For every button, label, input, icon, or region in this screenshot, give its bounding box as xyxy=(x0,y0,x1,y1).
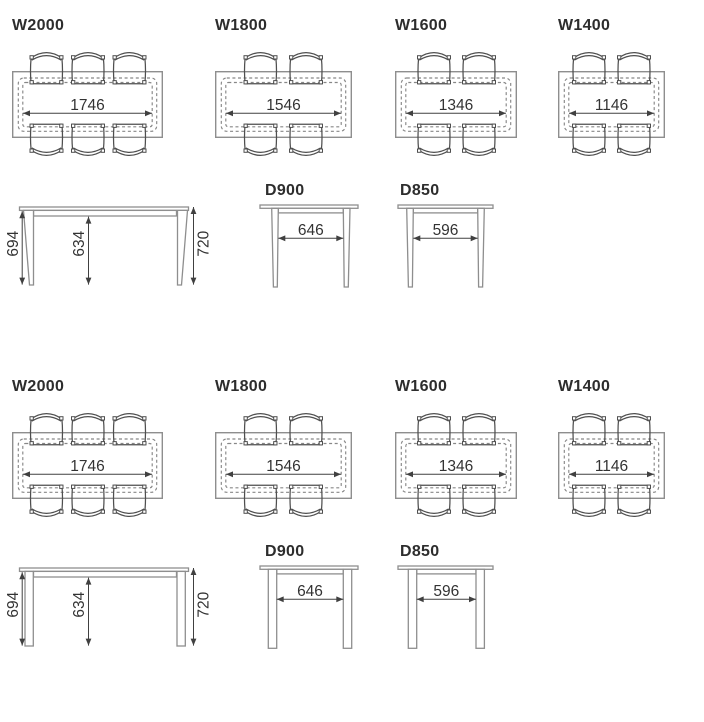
dimension-value: 1546 xyxy=(266,97,300,114)
depth-label: D850 xyxy=(400,183,439,199)
dimension-value: 694 xyxy=(5,230,22,256)
dimension-value: 634 xyxy=(71,591,88,617)
size-label: W1400 xyxy=(558,379,610,395)
table-leg xyxy=(268,569,276,648)
dimension-value: 1346 xyxy=(439,458,473,475)
table-end-drawing xyxy=(260,566,358,648)
top-view-w1400: 1146 xyxy=(558,409,665,521)
end-elevation-d900: 646 xyxy=(255,198,361,294)
table-leg xyxy=(24,210,34,285)
dimension-value: 1546 xyxy=(266,458,300,475)
size-label: W1600 xyxy=(395,379,447,395)
size-label: W1400 xyxy=(558,18,610,34)
table-leg xyxy=(177,571,185,646)
depth-label: D900 xyxy=(265,544,304,560)
top-view-w1800: 1546 xyxy=(215,409,352,521)
furniture-spec-sheet: { "sections": [ { "leg_style": "tapered"… xyxy=(0,0,704,698)
size-label: W2000 xyxy=(12,18,64,34)
top-view-w1600: 1346 xyxy=(395,48,517,160)
table-leg xyxy=(25,571,33,646)
dimension-value: 1746 xyxy=(70,458,104,475)
table-leg xyxy=(343,569,351,648)
top-view-w1600: 1346 xyxy=(395,409,517,521)
dimension-value: 1746 xyxy=(70,97,104,114)
end-elevation-d900: 646 xyxy=(255,559,361,655)
section-straight-leg-table: W2000 W1800 W1600 W1400 1746 1546 1346 1… xyxy=(0,361,704,722)
dimension-value: 596 xyxy=(433,222,459,239)
end-elevation-d850: 596 xyxy=(393,198,499,294)
top-view-w1400: 1146 xyxy=(558,48,665,160)
depth-label: D850 xyxy=(400,544,439,560)
end-elevation-d850: 596 xyxy=(393,559,499,655)
table-leg xyxy=(343,208,350,287)
table-end-drawing xyxy=(260,205,358,287)
table-leg xyxy=(476,569,484,648)
size-label: W1800 xyxy=(215,379,267,395)
top-view-w2000: 1746 xyxy=(12,409,163,521)
dimension-value: 646 xyxy=(298,222,324,239)
dimension-value: 1346 xyxy=(439,97,473,114)
dimension-value: 596 xyxy=(433,583,459,600)
table-leg xyxy=(407,208,414,287)
table-end-drawing xyxy=(398,205,493,287)
size-label: W2000 xyxy=(12,379,64,395)
table-leg xyxy=(478,208,485,287)
top-view-w2000: 1746 xyxy=(12,48,163,160)
table-side-drawing xyxy=(20,568,189,646)
table-end-drawing xyxy=(398,566,493,648)
table-side-drawing xyxy=(20,207,189,285)
side-elevation: 694 634 720 xyxy=(2,559,214,655)
dimension-value: 646 xyxy=(297,583,323,600)
dimension-value: 720 xyxy=(195,591,212,617)
section-tapered-leg-table: W2000 W1800 W1600 W1400 1746 1546 1346 xyxy=(0,0,704,361)
table-leg xyxy=(408,569,416,648)
size-label: W1600 xyxy=(395,18,447,34)
size-label: W1800 xyxy=(215,18,267,34)
top-view-w1800: 1546 xyxy=(215,48,352,160)
table-leg xyxy=(272,208,279,287)
dimension-value: 720 xyxy=(195,230,212,256)
depth-label: D900 xyxy=(265,183,304,199)
dimension-value: 634 xyxy=(71,230,88,256)
table-leg xyxy=(178,210,188,285)
dimension-value: 1146 xyxy=(595,458,628,475)
side-elevation: 694 634 720 xyxy=(2,198,214,294)
dimension-value: 1146 xyxy=(595,97,628,114)
dimension-value: 694 xyxy=(5,591,22,617)
